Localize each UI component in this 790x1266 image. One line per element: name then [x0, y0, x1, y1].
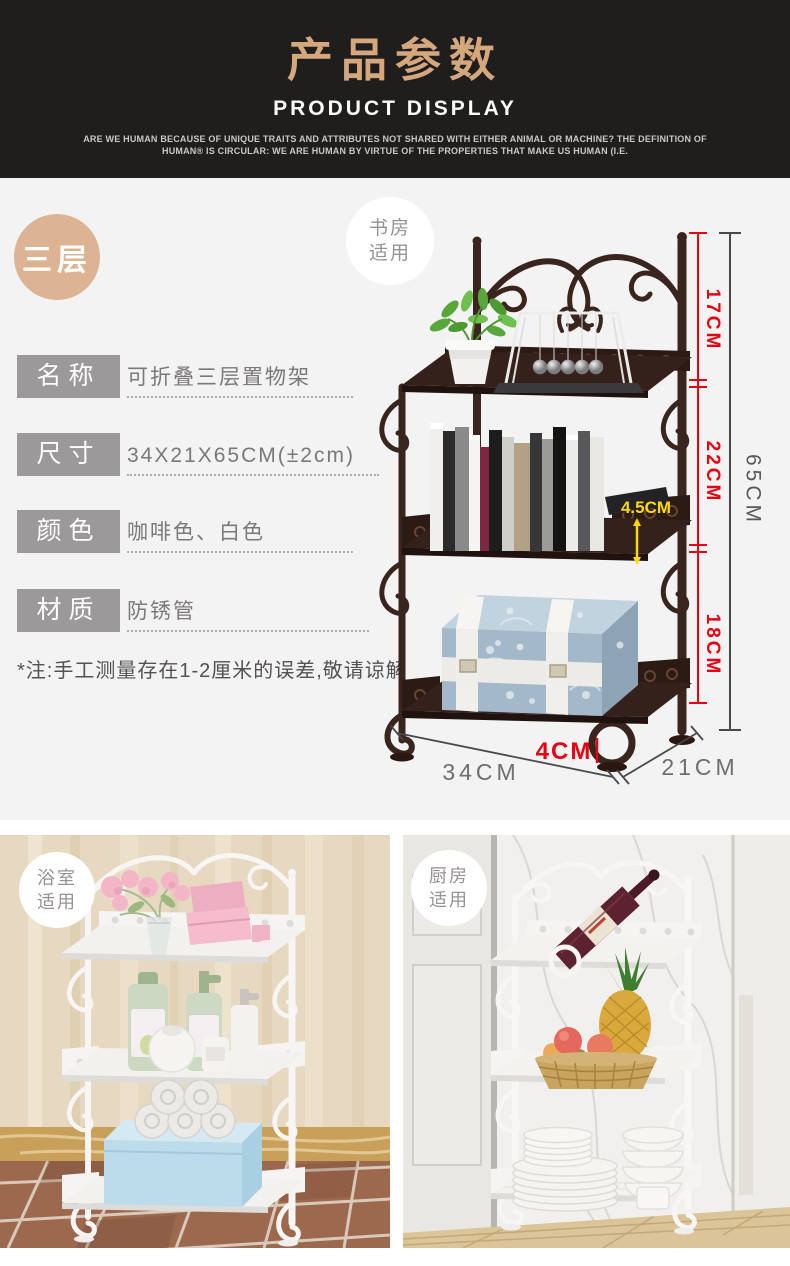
- header-tagline: ARE WE HUMAN BECAUSE OF UNIQUE TRAITS AN…: [0, 133, 790, 157]
- tagline-line2: HUMAN® IS CIRCULAR: WE ARE HUMAN BY VIRT…: [0, 145, 790, 157]
- spec-value-color: 咖啡色、白色: [127, 510, 353, 553]
- cabinet-panel: [413, 965, 481, 1165]
- bathroom-badge-line2: 适用: [37, 890, 77, 914]
- yellow-arrow-down: [633, 557, 641, 565]
- kitchen-photo: 厨房 适用: [403, 835, 790, 1248]
- dim-tier3: 18CM: [702, 614, 723, 677]
- spec-label-material: 材质: [17, 589, 120, 632]
- tagline-line1: ARE WE HUMAN BECAUSE OF UNIQUE TRAITS AN…: [0, 133, 790, 145]
- kitchen-badge-line1: 厨房: [429, 864, 469, 888]
- door-frame: [739, 995, 753, 1195]
- kitchen-badge-line2: 适用: [429, 888, 469, 912]
- spec-label-name: 名称: [17, 355, 120, 398]
- kitchen-badge: 厨房 适用: [411, 850, 487, 926]
- bathroom-badge: 浴室 适用: [19, 852, 95, 928]
- dim-width: 34CM: [442, 759, 519, 785]
- page: 产品参数 PRODUCT DISPLAY ARE WE HUMAN BECAUS…: [0, 0, 790, 1266]
- dim-tier2: 22CM: [702, 441, 723, 504]
- dim-foot-height: 4CM: [536, 738, 593, 765]
- spec-value-name: 可折叠三层置物架: [127, 355, 353, 398]
- spec-label-color: 颜色: [17, 510, 120, 553]
- spec-value-size: 34X21X65CM(±2cm): [127, 433, 379, 476]
- page-subtitle: PRODUCT DISPLAY: [0, 97, 790, 121]
- product-diagram: 17CM 22CM 18CM 65CM 4.5CM 4CM 34CM 21CM: [350, 195, 790, 805]
- dim-tier1: 17CM: [702, 289, 723, 352]
- bathroom-photo: 浴室 适用: [0, 835, 390, 1248]
- dim-rail-height: 4.5CM: [621, 498, 671, 517]
- dim-total-height: 65CM: [741, 454, 764, 526]
- spec-label-size: 尺寸: [17, 433, 120, 476]
- storage-box: [442, 595, 638, 716]
- measurement-note: *注:手工测量存在1-2厘米的误差,敬请谅解: [17, 654, 407, 683]
- bathroom-badge-line1: 浴室: [37, 866, 77, 890]
- dim-depth: 21CM: [661, 754, 738, 780]
- page-title: 产品参数: [0, 24, 790, 90]
- header-banner: 产品参数 PRODUCT DISPLAY ARE WE HUMAN BECAUS…: [0, 0, 790, 178]
- peach-1: [554, 1027, 582, 1055]
- tier-count-badge: 三层: [14, 214, 100, 300]
- spec-value-material: 防锈管: [127, 589, 369, 632]
